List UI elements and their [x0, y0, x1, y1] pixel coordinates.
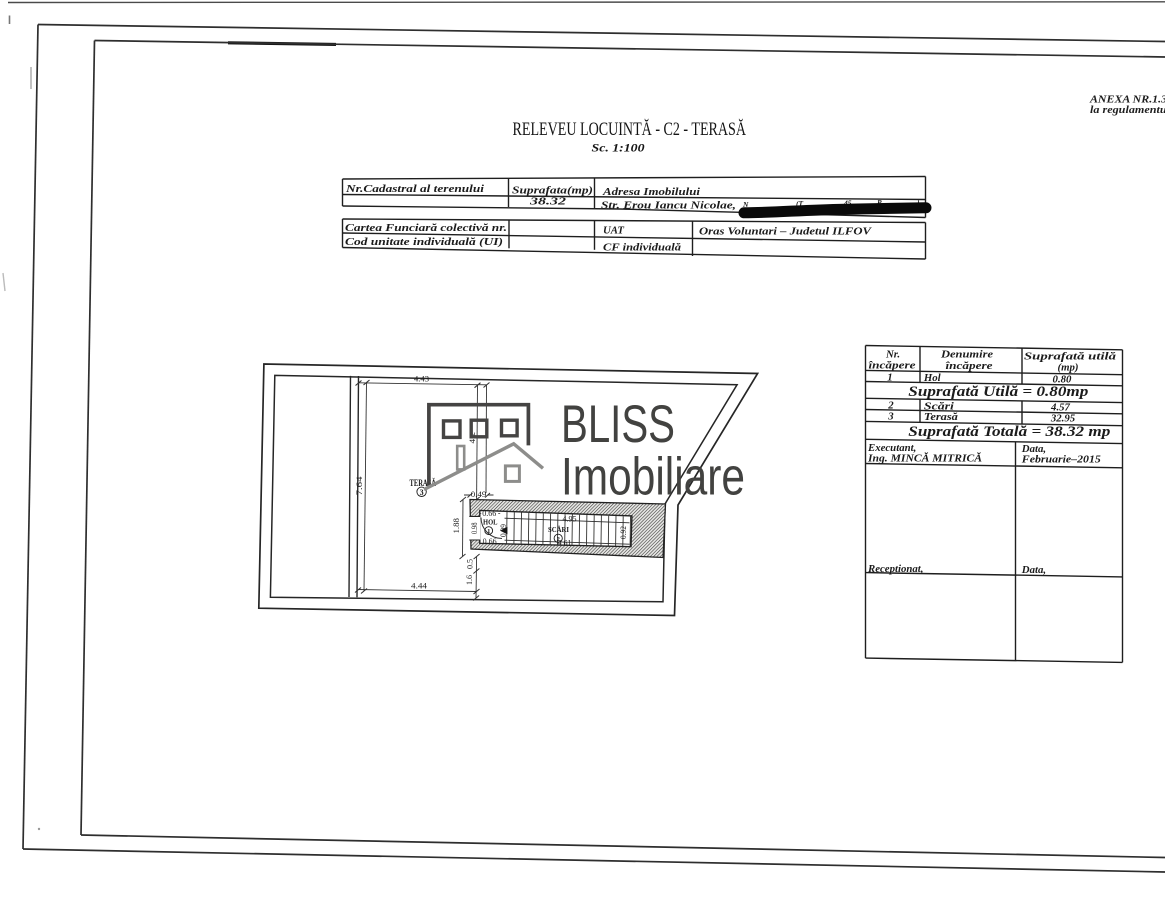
svg-text:Str. Erou Iancu Nicolae,: Str. Erou Iancu Nicolae, [601, 200, 736, 212]
svg-text:1: 1 [887, 371, 892, 383]
svg-text:RELEVEU LOCUINTĂ - C2 - TERAS: RELEVEU LOCUINTĂ - C2 - TERASĂ [513, 119, 747, 140]
svg-text:Hol: Hol [923, 372, 941, 384]
svg-text:SCĂRI: SCĂRI [548, 524, 569, 534]
svg-text:2: 2 [557, 536, 560, 543]
svg-text:Data,: Data, [1021, 564, 1046, 576]
svg-text:CF individuală: CF individuală [603, 242, 682, 254]
svg-text:(mp): (mp) [1058, 362, 1079, 374]
svg-text:Februarie–2015: Februarie–2015 [1021, 454, 1102, 466]
svg-text:38.32: 38.32 [529, 196, 567, 208]
svg-text:0.92: 0.92 [619, 526, 628, 539]
svg-text:Sc. 1:100: Sc. 1:100 [592, 141, 645, 155]
svg-text:0.5: 0.5 [465, 559, 474, 569]
svg-text:1.6: 1.6 [465, 575, 474, 585]
svg-text:Denumire: Denumire [940, 349, 993, 361]
svg-text:Receptionat,: Receptionat, [867, 563, 923, 575]
svg-text:BLISS: BLISS [561, 395, 675, 454]
svg-text:3: 3 [887, 411, 894, 423]
svg-text:încăpere: încăpere [869, 360, 916, 372]
svg-text:Suprafată Utilă = 0.80mp: Suprafată Utilă = 0.80mp [908, 384, 1088, 400]
svg-text:Suprafată Totală = 38.32 m: Suprafată Totală = 38.32 mp [908, 424, 1110, 440]
svg-text:0.99: 0.99 [499, 524, 508, 537]
svg-text:4.95: 4.95 [563, 515, 577, 524]
svg-text:32.95: 32.95 [1050, 413, 1076, 425]
svg-text:Nr.Cadastral al terenului: Nr.Cadastral al terenului [345, 183, 484, 195]
svg-text:Ing. MINCĂ MITRICĂ: Ing. MINCĂ MITRICĂ [867, 453, 982, 465]
svg-text:1: 1 [487, 528, 490, 535]
svg-text:încăpere: încăpere [946, 360, 993, 372]
svg-text:1.88: 1.88 [452, 518, 461, 534]
svg-text:Adresa Imobilului: Adresa Imobilului [602, 186, 700, 198]
svg-text:0.66: 0.66 [483, 537, 497, 546]
svg-text:0.66: 0.66 [482, 509, 496, 518]
svg-text:Imobiliare: Imobiliare [561, 447, 745, 506]
svg-text:3: 3 [420, 488, 424, 497]
svg-text:7.64: 7.64 [355, 477, 364, 496]
svg-text:HOL: HOL [483, 519, 498, 527]
svg-text:0.49: 0.49 [471, 490, 487, 499]
svg-text:UAT: UAT [603, 225, 624, 237]
svg-text:0.98: 0.98 [470, 523, 479, 535]
svg-text:Oras Voluntari – Judetul I: Oras Voluntari – Judetul ILFOV [699, 226, 872, 238]
svg-text:4.44: 4.44 [411, 582, 427, 591]
svg-text:la regulamentul: la regulamentul [1090, 105, 1165, 116]
svg-text:4.43: 4.43 [414, 375, 429, 384]
svg-text:ANEXA NR.1.37: ANEXA NR.1.37 [1089, 95, 1165, 106]
svg-text:Cod unitate individuală (UI: Cod unitate individuală (UI) [345, 236, 503, 248]
svg-text:Terasă: Terasă [924, 411, 959, 423]
svg-text:Cartea Funciară colectivă n: Cartea Funciară colectivă nr. [345, 222, 507, 234]
